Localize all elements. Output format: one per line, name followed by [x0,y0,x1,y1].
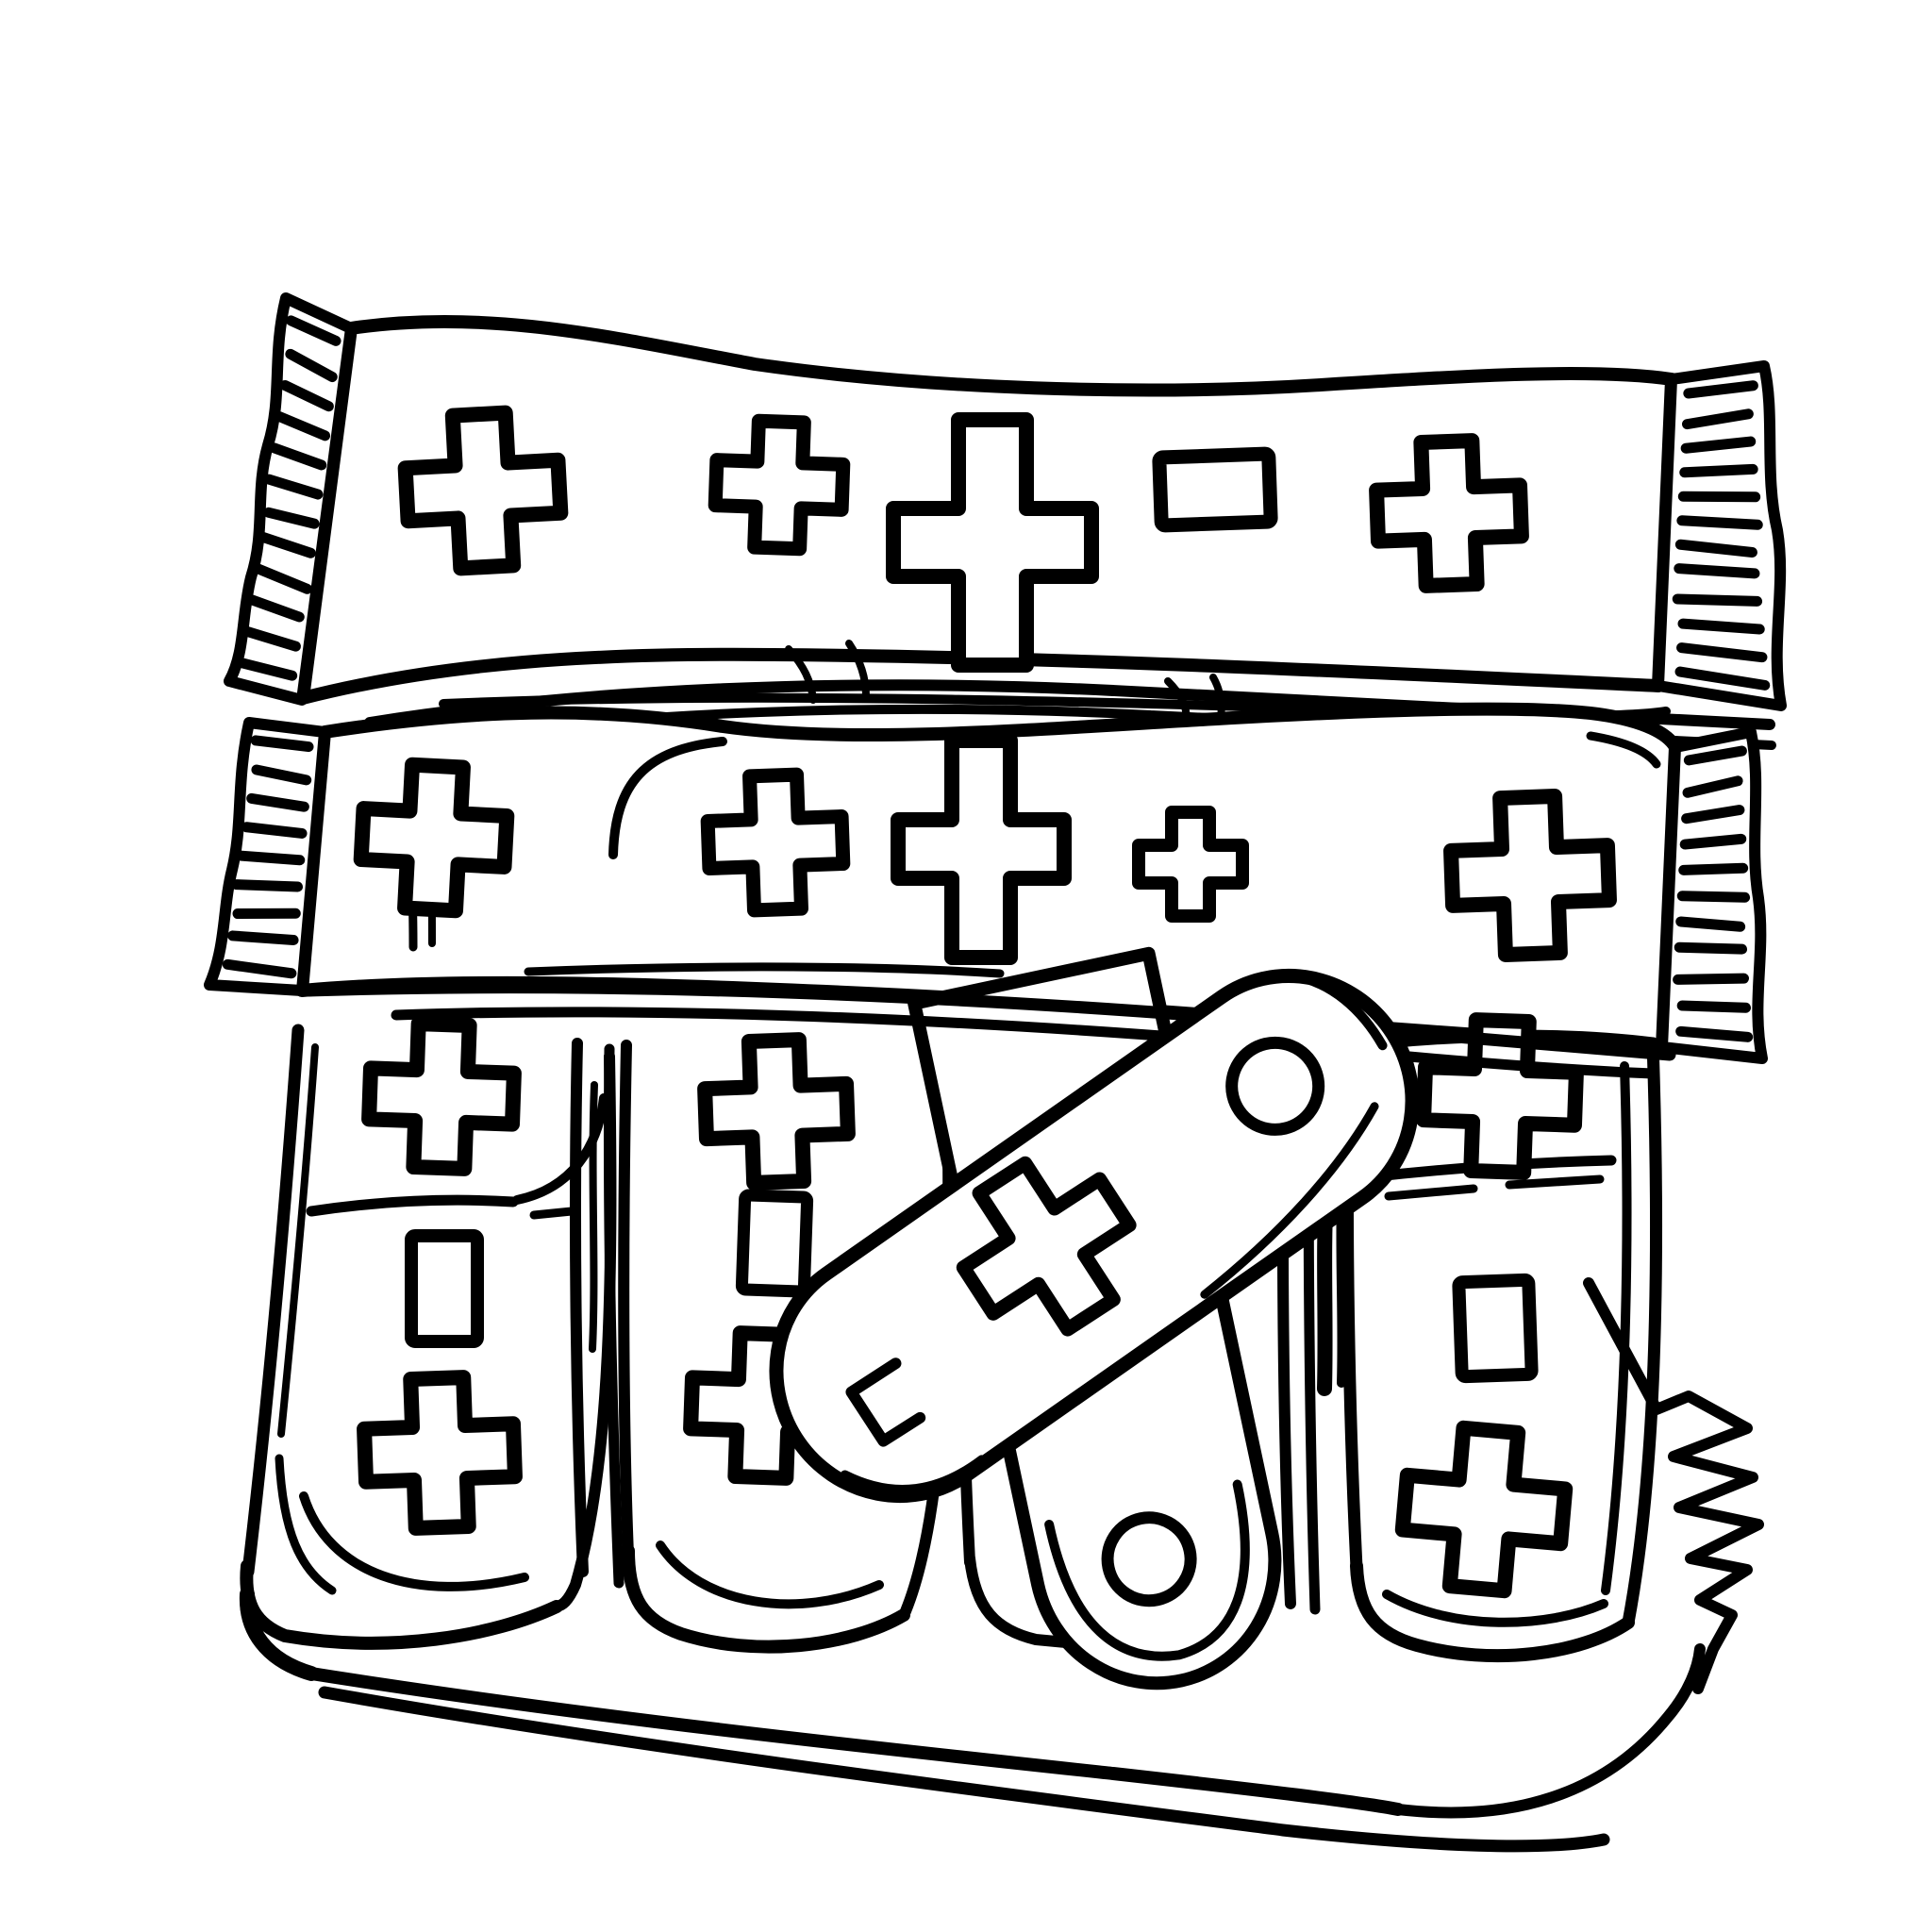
wrapper1-right-crimp-hatching-stroke [1679,569,1755,574]
wrapper2-right-crimp-hatching-stroke [1681,1031,1748,1037]
wrapper1-right-crimp-hatching-stroke [1682,521,1757,525]
wrapper1-right-crimp-hatching-stroke [1677,599,1757,601]
packet2-left-edge [624,1045,628,1555]
wrapper2-left-crimp-hatching-stroke [241,856,300,860]
packet1-seam-dash [534,1211,572,1215]
wrapper2-right-crimp-hatching-stroke [1685,839,1741,844]
wrapper2-left-crimp-hatching-stroke [256,741,308,747]
wrapper1-right-crimp-hatching-stroke [1683,624,1759,629]
wrapper2-right-crimp-hatching-stroke [1679,947,1741,949]
wrapper2-left-crimp-hatching-stroke [237,885,298,887]
dash-wrapper1 [1159,454,1271,525]
wrapper2-left-crimp-hatching-stroke [233,936,293,941]
bandage-line-art: Hand-drawn line art of adhesive bandage … [0,0,1932,1932]
wrapper2-right-crimp-hatching-stroke [1681,922,1740,926]
wrapper2-right-crimp-hatching-stroke [1678,978,1744,979]
dash-packet2 [741,1195,807,1291]
wrapper2-left-crimp-hatching-stroke [246,827,302,834]
wrapper2-right-crimp-hatching-stroke [1684,868,1743,870]
dash-packet4 [1458,1280,1531,1377]
dash-packet1 [411,1236,477,1341]
separation12-line-3 [592,1085,594,1349]
wrapper1-right-crimp-hatching-stroke [1685,469,1753,472]
wrapper1-right-crimp-hatching-stroke [1686,441,1751,448]
wrapper2-right-crimp-hatching-stroke [1682,1006,1745,1008]
drawing-canvas: Hand-drawn line art of adhesive bandage … [0,0,1932,1932]
wrapper2-right-crimp-hatching-stroke [1682,896,1744,898]
